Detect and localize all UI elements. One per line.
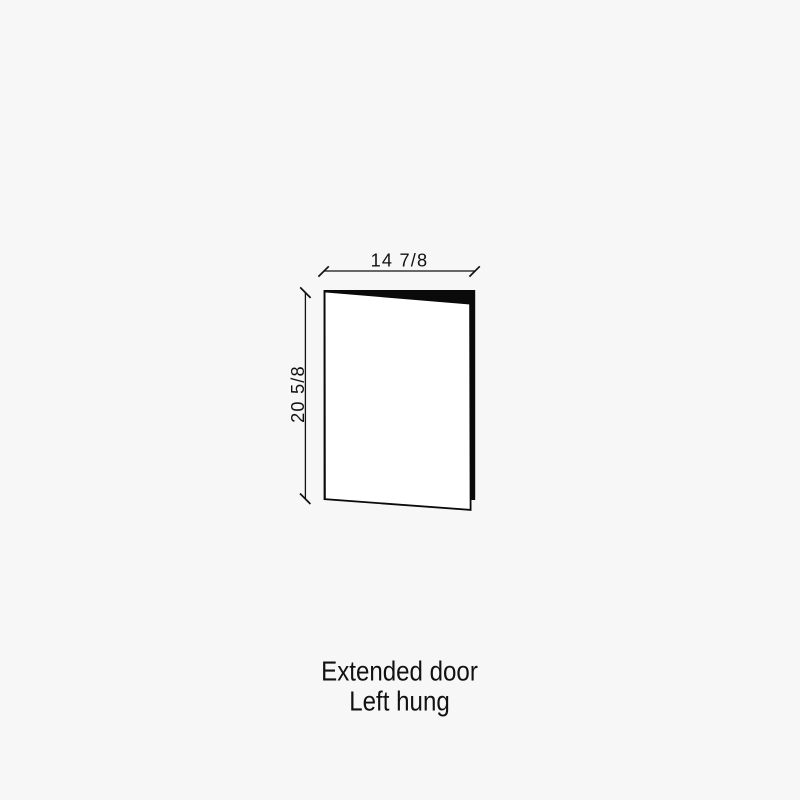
svg-text:Left hung: Left hung xyxy=(349,685,449,717)
svg-text:14 7/8: 14 7/8 xyxy=(371,251,429,271)
svg-text:20 5/8: 20 5/8 xyxy=(288,365,308,423)
svg-text:Extended door: Extended door xyxy=(321,655,478,687)
